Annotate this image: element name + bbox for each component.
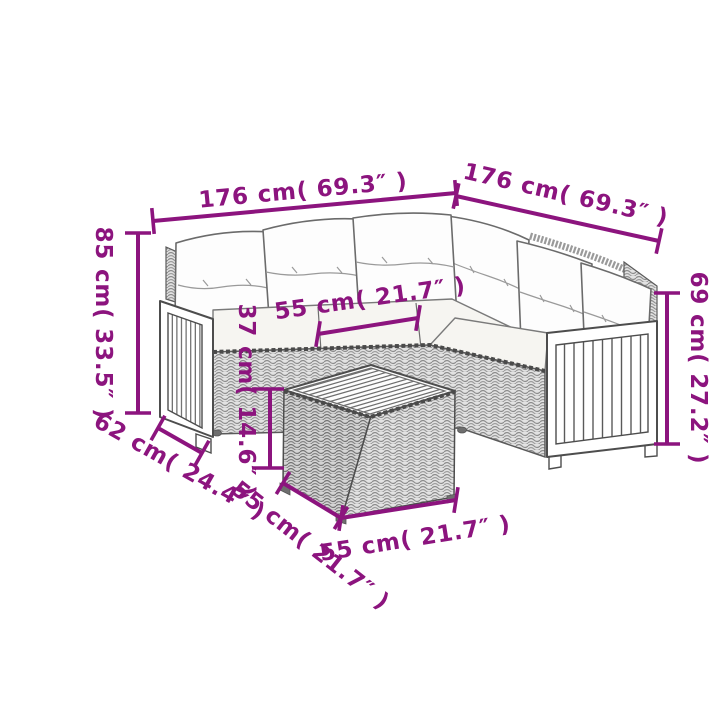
dimension-diagram-canvas: 176 cm( 69.3″ ) 176 cm( 69.3″ ) 85 cm( 3… (0, 0, 720, 720)
product-dimension-diagram: 176 cm( 69.3″ ) 176 cm( 69.3″ ) 85 cm( 3… (0, 0, 720, 720)
dim-label-table-width: 55 cm( 21.7″ ) (318, 511, 513, 567)
right-armrest (547, 321, 657, 469)
dim-overall-height: 85 cm( 33.5″ ) (90, 227, 151, 420)
dim-label-overall-height: 85 cm( 33.5″ ) (90, 227, 116, 420)
dim-arm-side-height: 69 cm( 27.2″ ) (654, 272, 711, 465)
coffee-table (280, 365, 456, 524)
dim-label-arm-side-height: 69 cm( 27.2″ ) (685, 272, 711, 465)
dim-label-table-height: 37 cm( 14.6″ ) (233, 304, 259, 497)
left-armrest (160, 301, 213, 453)
